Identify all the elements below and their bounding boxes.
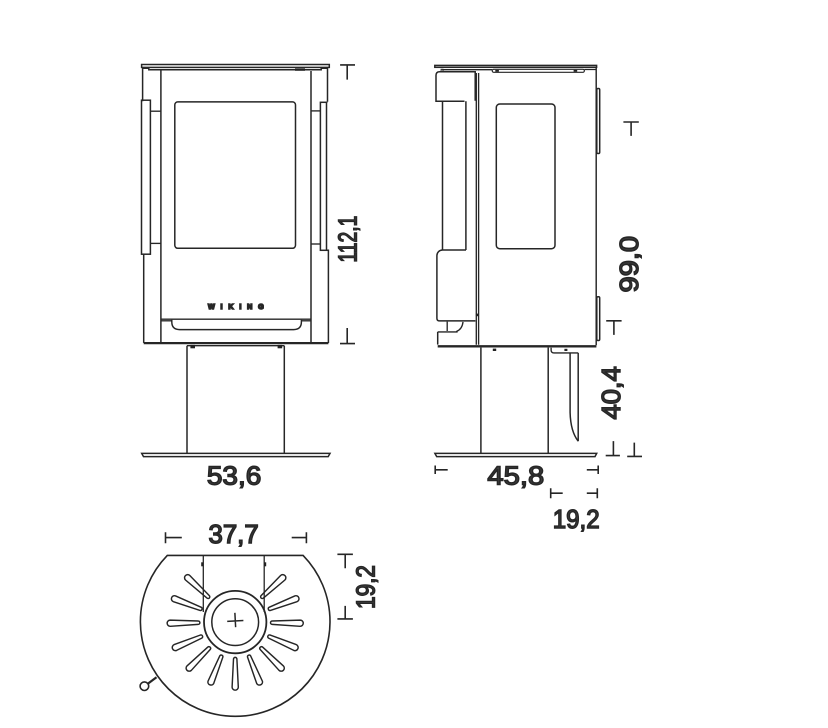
svg-text:19,2: 19,2 xyxy=(553,504,600,534)
svg-text:45,8: 45,8 xyxy=(487,461,544,491)
svg-text:WIKING: WIKING xyxy=(208,302,270,311)
svg-text:40,4: 40,4 xyxy=(596,366,626,419)
svg-text:37,7: 37,7 xyxy=(209,519,259,549)
svg-text:99,0: 99,0 xyxy=(614,236,644,293)
svg-text:53,6: 53,6 xyxy=(207,461,261,491)
svg-text:112,1: 112,1 xyxy=(332,216,362,263)
svg-text:19,2: 19,2 xyxy=(351,565,381,609)
